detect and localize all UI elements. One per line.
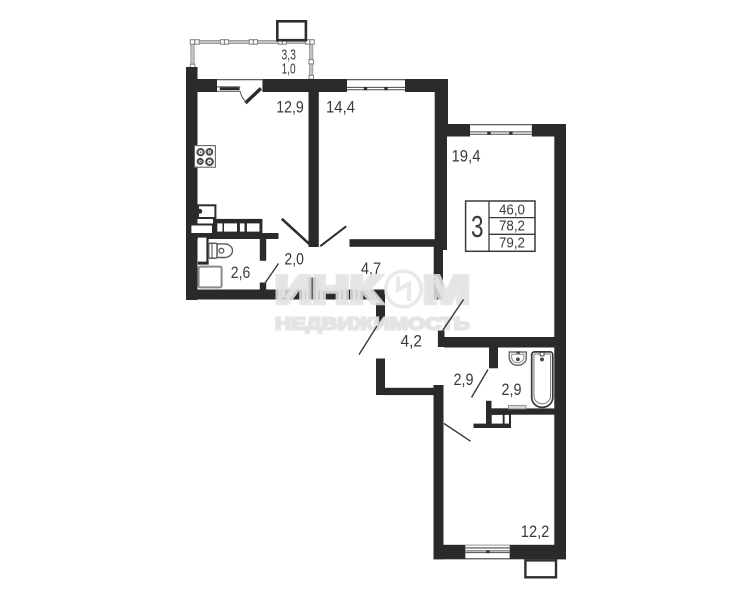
svg-text:НЕДВИЖИМОСТЬ: НЕДВИЖИМОСТЬ bbox=[275, 314, 470, 334]
svg-text:1,0: 1,0 bbox=[282, 61, 296, 78]
svg-text:79,2: 79,2 bbox=[499, 236, 525, 252]
svg-text:46,0: 46,0 bbox=[499, 203, 525, 219]
svg-text:2,9: 2,9 bbox=[502, 381, 522, 399]
svg-text:14,4: 14,4 bbox=[326, 98, 355, 116]
svg-text:М: М bbox=[423, 269, 470, 312]
svg-text:ИНК: ИНК bbox=[275, 269, 381, 312]
svg-text:3: 3 bbox=[471, 209, 484, 244]
svg-text:2,9: 2,9 bbox=[454, 371, 474, 389]
svg-text:2,0: 2,0 bbox=[284, 250, 304, 268]
svg-text:4,2: 4,2 bbox=[401, 333, 423, 351]
svg-text:12,2: 12,2 bbox=[521, 523, 550, 541]
svg-text:2,6: 2,6 bbox=[231, 264, 251, 282]
svg-text:78,2: 78,2 bbox=[499, 218, 525, 234]
svg-text:19,4: 19,4 bbox=[452, 147, 481, 165]
svg-text:12,9: 12,9 bbox=[276, 98, 304, 116]
